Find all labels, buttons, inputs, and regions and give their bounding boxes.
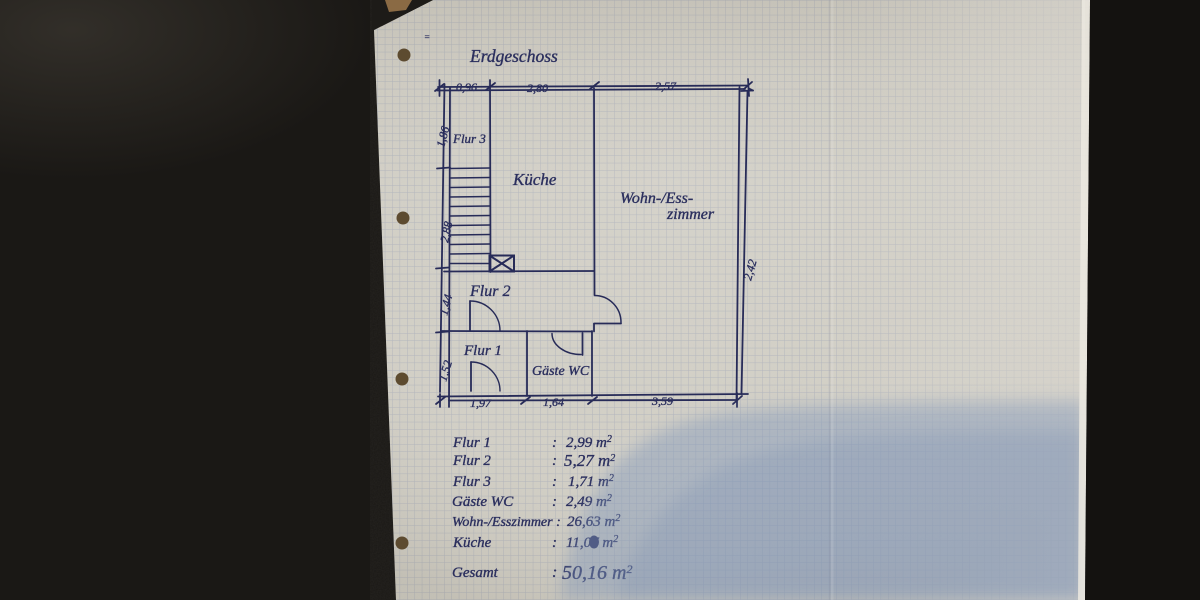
svg-text:Gäste WC: Gäste WC	[532, 364, 590, 379]
svg-text:1,97: 1,97	[470, 396, 492, 410]
svg-text:5,27 m2: 5,27 m2	[564, 451, 615, 470]
svg-text::: :	[552, 535, 557, 551]
svg-text:3,59: 3,59	[651, 394, 673, 408]
svg-text:Flur 2: Flur 2	[452, 453, 491, 469]
svg-text:Wohn-/Ess-: Wohn-/Ess-	[620, 190, 693, 207]
svg-text:Erdgeschoss: Erdgeschoss	[469, 46, 558, 66]
svg-text:2,57: 2,57	[655, 79, 677, 93]
svg-text:Wohn-/Esszimmer :: Wohn-/Esszimmer :	[452, 515, 561, 530]
svg-text:1,64: 1,64	[543, 395, 564, 409]
svg-text:Gäste WC: Gäste WC	[452, 494, 514, 510]
svg-text:0,96: 0,96	[456, 80, 477, 94]
svg-text:Flur 1: Flur 1	[463, 343, 502, 359]
svg-text:Flur 2: Flur 2	[469, 283, 510, 300]
svg-text::: :	[552, 474, 557, 490]
svg-text:zimmer: zimmer	[666, 206, 715, 223]
svg-text::: :	[552, 435, 557, 451]
svg-text:Flur 3: Flur 3	[452, 131, 486, 146]
svg-text:Küche: Küche	[452, 535, 492, 551]
svg-text:Gesamt: Gesamt	[452, 565, 499, 581]
svg-text::: :	[552, 564, 557, 581]
svg-text:=: =	[424, 32, 430, 42]
svg-text:2,99 m2: 2,99 m2	[566, 434, 612, 451]
svg-text::: :	[552, 453, 557, 469]
svg-text:Flur 3: Flur 3	[452, 474, 491, 490]
svg-text:Flur 1: Flur 1	[452, 435, 491, 451]
svg-text::: :	[552, 494, 557, 510]
svg-text:2,80: 2,80	[527, 81, 548, 95]
svg-text:Küche: Küche	[512, 170, 557, 189]
